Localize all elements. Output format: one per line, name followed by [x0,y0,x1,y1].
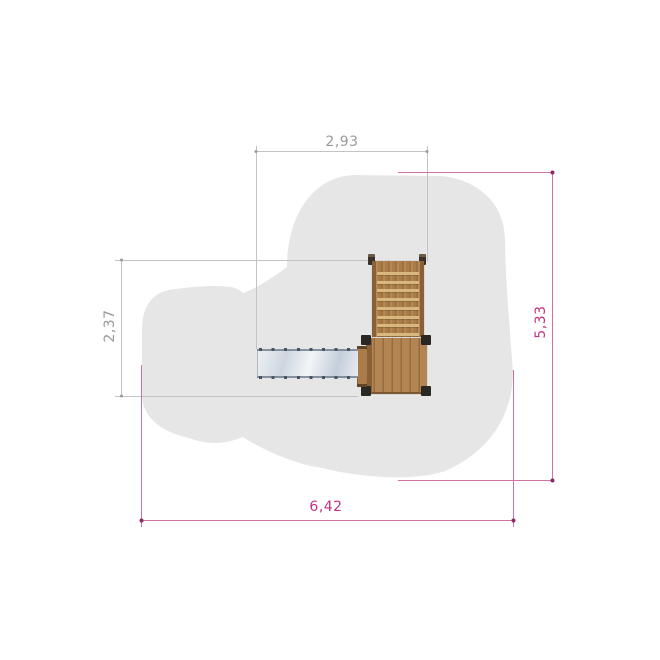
dim-end-dot [512,519,516,523]
corner-post-icon [421,335,431,345]
slide-rivets-top [259,348,358,351]
dim-end-dot [120,395,123,398]
safety-zone [142,175,513,477]
platform [366,338,427,394]
corner-post-icon [361,386,371,396]
dim-end-dot [551,479,555,483]
dimension-label-right: 5,33 [533,292,549,352]
dim-end-dot [551,171,555,175]
dim-end-dot [426,150,429,153]
dimension-label-top: 2,93 [312,134,372,150]
dim-end-dot [140,519,144,523]
ladder-rung [377,324,419,327]
ladder-rung [377,281,419,284]
ladder-rung [377,333,419,336]
slide-entry-board [357,346,367,387]
dimension-label-bottom: 6,42 [296,499,356,515]
dimension-label-left: 2,37 [102,296,118,356]
drawing-linework [0,0,660,660]
corner-post-icon [421,386,431,396]
corner-post-icon [361,335,371,345]
ladder-rung [377,272,419,275]
ladder-rung [377,289,419,292]
ladder [372,261,424,339]
slide-rivets-bottom [259,376,358,379]
dim-end-dot [255,150,258,153]
slide [257,349,358,378]
ladder-rung [377,307,419,310]
ladder-rung [377,298,419,301]
dim-end-dot [120,259,123,262]
ladder-rung [377,316,419,319]
drawing-canvas: 2,93 2,37 5,33 6,42 [0,0,660,660]
